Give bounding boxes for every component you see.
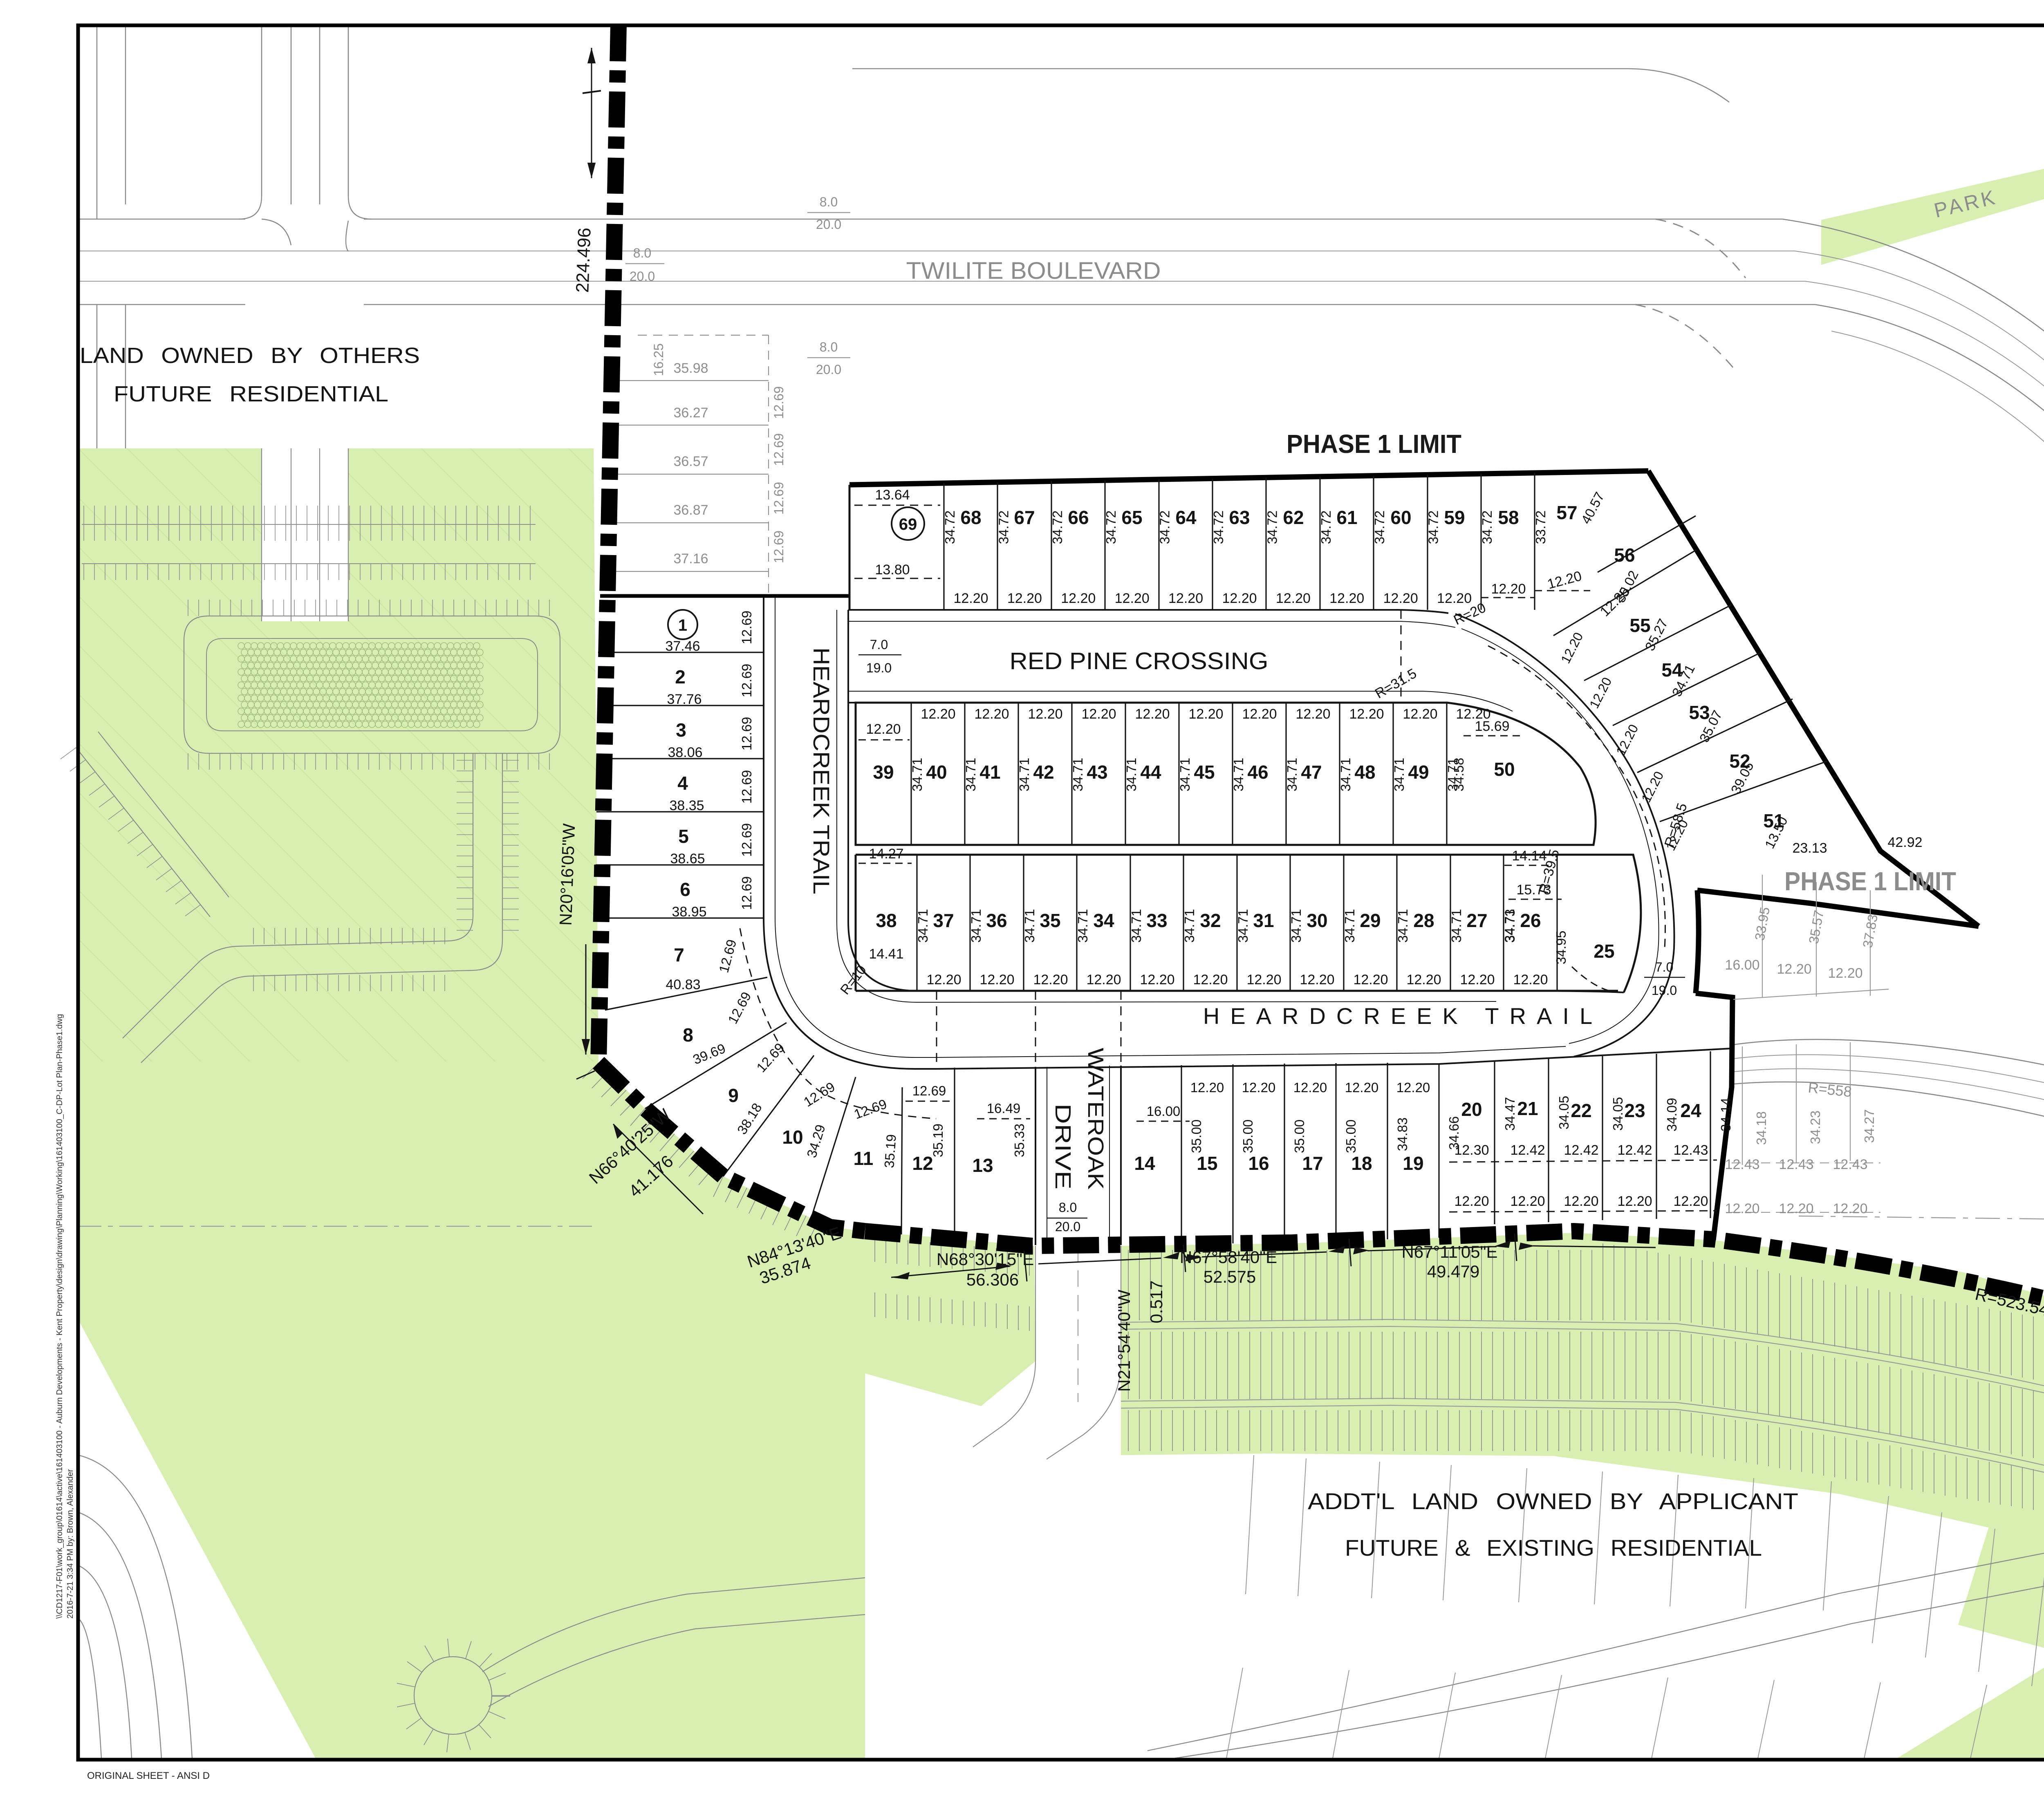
svg-text:34.72: 34.72 bbox=[1372, 511, 1387, 544]
svg-text:12.69: 12.69 bbox=[771, 433, 786, 466]
svg-text:20.0: 20.0 bbox=[816, 362, 841, 377]
svg-text:12.20: 12.20 bbox=[1406, 972, 1441, 988]
svg-text:38.06: 38.06 bbox=[668, 745, 702, 760]
svg-text:8.0: 8.0 bbox=[1059, 1200, 1077, 1215]
svg-text:42.92: 42.92 bbox=[1887, 835, 1922, 850]
svg-text:49: 49 bbox=[1408, 761, 1429, 783]
svg-text:34.71: 34.71 bbox=[1124, 758, 1139, 792]
svg-text:12.20: 12.20 bbox=[1033, 972, 1068, 988]
svg-text:62: 62 bbox=[1283, 507, 1304, 528]
svg-text:RED PINE CROSSING: RED PINE CROSSING bbox=[1010, 648, 1269, 674]
svg-text:34.47: 34.47 bbox=[1502, 1097, 1517, 1131]
svg-text:34.71: 34.71 bbox=[968, 909, 984, 943]
svg-text:46: 46 bbox=[1247, 761, 1268, 783]
svg-text:20.0: 20.0 bbox=[1055, 1219, 1080, 1234]
svg-text:12.42: 12.42 bbox=[1510, 1142, 1545, 1158]
svg-text:12.20: 12.20 bbox=[1353, 972, 1388, 988]
svg-text:12.42: 12.42 bbox=[1564, 1142, 1598, 1158]
svg-text:34.71: 34.71 bbox=[1017, 758, 1032, 792]
svg-text:12.20: 12.20 bbox=[1246, 972, 1281, 988]
svg-text:67: 67 bbox=[1014, 507, 1035, 528]
svg-text:34.71: 34.71 bbox=[1338, 758, 1353, 792]
svg-text:47: 47 bbox=[1301, 761, 1322, 783]
svg-text:17: 17 bbox=[1302, 1153, 1323, 1174]
svg-text:12.42: 12.42 bbox=[1617, 1142, 1652, 1158]
svg-text:34.71: 34.71 bbox=[1022, 909, 1037, 943]
svg-text:19.0: 19.0 bbox=[1652, 983, 1677, 998]
svg-text:60: 60 bbox=[1390, 507, 1411, 528]
svg-text:12.20: 12.20 bbox=[921, 706, 955, 722]
svg-text:12: 12 bbox=[912, 1153, 933, 1174]
svg-text:44: 44 bbox=[1140, 761, 1161, 783]
svg-text:12.20: 12.20 bbox=[1115, 591, 1150, 606]
svg-text:12.20: 12.20 bbox=[979, 972, 1014, 988]
svg-text:37.16: 37.16 bbox=[673, 551, 708, 567]
svg-text:12.20: 12.20 bbox=[1242, 706, 1277, 722]
svg-text:34.71: 34.71 bbox=[1235, 909, 1251, 943]
svg-text:12.20: 12.20 bbox=[1061, 591, 1096, 606]
svg-text:12.20: 12.20 bbox=[1828, 965, 1862, 981]
svg-text:40.83: 40.83 bbox=[666, 977, 700, 992]
svg-text:\\CD1217-F01\work_group\01614\: \\CD1217-F01\work_group\01614\active\161… bbox=[55, 1014, 64, 1619]
svg-text:33: 33 bbox=[1146, 910, 1167, 931]
svg-text:13: 13 bbox=[972, 1155, 993, 1176]
svg-text:35.00: 35.00 bbox=[1343, 1120, 1358, 1153]
svg-text:35.19: 35.19 bbox=[930, 1124, 946, 1158]
svg-text:N67°11'05"E: N67°11'05"E bbox=[1401, 1242, 1497, 1261]
svg-text:69: 69 bbox=[899, 515, 917, 533]
svg-text:7: 7 bbox=[674, 944, 684, 965]
svg-text:28: 28 bbox=[1413, 910, 1434, 931]
svg-text:25: 25 bbox=[1594, 941, 1614, 962]
svg-text:13.80: 13.80 bbox=[875, 562, 910, 578]
svg-text:12.69: 12.69 bbox=[739, 717, 754, 751]
svg-text:38.65: 38.65 bbox=[670, 851, 705, 867]
svg-text:12.69: 12.69 bbox=[739, 664, 754, 698]
svg-text:34.71: 34.71 bbox=[1289, 909, 1304, 943]
svg-text:12.20: 12.20 bbox=[1454, 1194, 1489, 1209]
svg-text:34.71: 34.71 bbox=[963, 758, 978, 792]
svg-text:12.20: 12.20 bbox=[1779, 1201, 1813, 1216]
svg-text:12.20: 12.20 bbox=[1222, 591, 1257, 606]
svg-text:N68°30'15"E: N68°30'15"E bbox=[937, 1250, 1034, 1269]
svg-text:34.83: 34.83 bbox=[1395, 1118, 1410, 1151]
svg-text:34.71: 34.71 bbox=[1342, 909, 1357, 943]
svg-text:48: 48 bbox=[1354, 761, 1375, 783]
svg-text:34.27: 34.27 bbox=[1862, 1109, 1877, 1143]
svg-text:12.43: 12.43 bbox=[1673, 1142, 1708, 1158]
svg-text:12.69: 12.69 bbox=[739, 876, 754, 910]
svg-text:59: 59 bbox=[1444, 507, 1465, 528]
svg-text:23.13: 23.13 bbox=[1792, 840, 1827, 856]
svg-text:12.20: 12.20 bbox=[1188, 706, 1223, 722]
svg-text:16.00: 16.00 bbox=[1725, 957, 1759, 973]
svg-text:34.71: 34.71 bbox=[1395, 909, 1410, 943]
svg-text:12.20: 12.20 bbox=[1460, 972, 1495, 988]
svg-text:PHASE 1 LIMIT: PHASE 1 LIMIT bbox=[1784, 867, 1956, 896]
svg-text:34.72: 34.72 bbox=[1479, 511, 1495, 544]
svg-text:12.20: 12.20 bbox=[1491, 581, 1526, 597]
svg-text:12.43: 12.43 bbox=[1833, 1157, 1867, 1172]
svg-text:35.33: 35.33 bbox=[1012, 1124, 1027, 1158]
svg-text:34.71: 34.71 bbox=[915, 909, 930, 943]
svg-text:12.69: 12.69 bbox=[739, 770, 754, 804]
svg-text:12.20: 12.20 bbox=[926, 972, 961, 988]
svg-text:14.14: 14.14 bbox=[1512, 848, 1546, 864]
svg-text:12.20: 12.20 bbox=[1329, 591, 1364, 606]
svg-text:20.0: 20.0 bbox=[816, 217, 841, 232]
svg-text:58: 58 bbox=[1498, 507, 1519, 528]
svg-text:34.71: 34.71 bbox=[1449, 909, 1464, 943]
svg-text:66: 66 bbox=[1068, 507, 1089, 528]
svg-text:16: 16 bbox=[1248, 1153, 1269, 1174]
svg-text:5: 5 bbox=[678, 826, 689, 847]
svg-text:FUTURE RESIDENTIAL: FUTURE RESIDENTIAL bbox=[114, 382, 388, 406]
svg-text:224.496: 224.496 bbox=[572, 227, 595, 293]
svg-text:3: 3 bbox=[676, 719, 686, 741]
svg-text:45: 45 bbox=[1194, 761, 1215, 783]
svg-text:40: 40 bbox=[926, 761, 947, 783]
svg-text:34.23: 34.23 bbox=[1808, 1111, 1823, 1144]
svg-text:55: 55 bbox=[1629, 615, 1650, 636]
svg-text:63: 63 bbox=[1229, 507, 1250, 528]
svg-text:34.14: 34.14 bbox=[1718, 1098, 1733, 1132]
svg-text:12.20: 12.20 bbox=[1300, 972, 1334, 988]
svg-text:2016-7-21 3:34 PM by: Brown, A: 2016-7-21 3:34 PM by: Brown, Alexander bbox=[66, 1469, 75, 1619]
svg-text:FUTURE & EXISTING RESIDENTIAL: FUTURE & EXISTING RESIDENTIAL bbox=[1345, 1535, 1762, 1561]
svg-text:15: 15 bbox=[1197, 1153, 1217, 1174]
svg-text:34.71: 34.71 bbox=[1392, 758, 1407, 792]
svg-text:12.20: 12.20 bbox=[953, 591, 988, 606]
svg-text:12.20: 12.20 bbox=[1028, 706, 1062, 722]
svg-text:12.20: 12.20 bbox=[1777, 961, 1811, 977]
svg-text:34.73: 34.73 bbox=[1502, 909, 1517, 943]
svg-text:34.72: 34.72 bbox=[1426, 511, 1441, 544]
svg-text:34.05: 34.05 bbox=[1610, 1097, 1625, 1131]
svg-text:35.19: 35.19 bbox=[881, 1134, 899, 1169]
svg-text:19.0: 19.0 bbox=[866, 661, 892, 675]
svg-text:32: 32 bbox=[1200, 910, 1221, 931]
svg-text:19: 19 bbox=[1403, 1153, 1423, 1174]
svg-text:9: 9 bbox=[728, 1085, 739, 1106]
svg-text:12.20: 12.20 bbox=[1617, 1194, 1652, 1209]
svg-text:36: 36 bbox=[986, 910, 1007, 931]
svg-text:27: 27 bbox=[1466, 910, 1487, 931]
svg-text:TWILITE BOULEVARD: TWILITE BOULEVARD bbox=[906, 258, 1161, 284]
svg-text:12.20: 12.20 bbox=[1293, 1080, 1327, 1095]
svg-text:43: 43 bbox=[1087, 761, 1107, 783]
svg-text:34.09: 34.09 bbox=[1664, 1098, 1679, 1132]
svg-text:12.20: 12.20 bbox=[866, 721, 901, 737]
svg-text:12.20: 12.20 bbox=[1403, 706, 1437, 722]
svg-text:2: 2 bbox=[675, 666, 686, 688]
svg-text:31: 31 bbox=[1253, 910, 1274, 931]
svg-text:38.95: 38.95 bbox=[672, 904, 706, 920]
svg-text:36.27: 36.27 bbox=[673, 405, 708, 421]
svg-text:29: 29 bbox=[1360, 910, 1381, 931]
svg-text:21: 21 bbox=[1517, 1098, 1538, 1119]
svg-text:34.72: 34.72 bbox=[1211, 511, 1226, 544]
svg-text:35: 35 bbox=[1040, 910, 1060, 931]
svg-text:34.71: 34.71 bbox=[1177, 758, 1192, 792]
svg-text:20: 20 bbox=[1461, 1099, 1482, 1120]
svg-text:34.05: 34.05 bbox=[1556, 1096, 1571, 1130]
svg-text:61: 61 bbox=[1336, 507, 1357, 528]
svg-text:N21°54'40"W: N21°54'40"W bbox=[1114, 1290, 1134, 1392]
svg-text:56: 56 bbox=[1614, 544, 1635, 566]
svg-text:34.71: 34.71 bbox=[1070, 758, 1085, 792]
svg-text:34: 34 bbox=[1093, 910, 1114, 931]
svg-text:33.72: 33.72 bbox=[1533, 511, 1548, 544]
svg-text:56.306: 56.306 bbox=[966, 1270, 1019, 1289]
svg-text:22: 22 bbox=[1571, 1100, 1591, 1121]
svg-text:37.46: 37.46 bbox=[665, 638, 700, 654]
svg-text:8.0: 8.0 bbox=[820, 195, 838, 209]
svg-text:10: 10 bbox=[782, 1127, 803, 1148]
svg-text:12.20: 12.20 bbox=[1295, 706, 1330, 722]
svg-text:14.41: 14.41 bbox=[869, 946, 903, 962]
svg-text:34.71: 34.71 bbox=[1129, 909, 1144, 943]
svg-text:12.20: 12.20 bbox=[1140, 972, 1174, 988]
svg-text:57: 57 bbox=[1556, 502, 1577, 523]
svg-text:34.72: 34.72 bbox=[1103, 511, 1118, 544]
svg-text:12.20: 12.20 bbox=[974, 706, 1009, 722]
svg-text:12.20: 12.20 bbox=[1081, 706, 1116, 722]
svg-text:7.0: 7.0 bbox=[870, 637, 888, 652]
svg-text:24: 24 bbox=[1680, 1100, 1701, 1121]
svg-text:34.18: 34.18 bbox=[1754, 1111, 1769, 1145]
svg-text:12.43: 12.43 bbox=[1725, 1157, 1759, 1172]
svg-text:12.20: 12.20 bbox=[1007, 591, 1042, 606]
svg-text:39: 39 bbox=[873, 761, 894, 783]
svg-text:35.98: 35.98 bbox=[673, 361, 708, 376]
svg-text:12.20: 12.20 bbox=[1190, 1080, 1224, 1095]
svg-text:1: 1 bbox=[678, 616, 687, 634]
svg-text:18: 18 bbox=[1351, 1153, 1372, 1174]
svg-text:34.72: 34.72 bbox=[1050, 511, 1065, 544]
svg-text:37.76: 37.76 bbox=[667, 692, 702, 707]
svg-text:36.87: 36.87 bbox=[673, 502, 708, 518]
svg-text:HEARDCREEK TRAIL: HEARDCREEK TRAIL bbox=[809, 647, 834, 894]
svg-text:34.71: 34.71 bbox=[910, 758, 925, 792]
svg-text:26: 26 bbox=[1520, 910, 1541, 931]
svg-text:36.57: 36.57 bbox=[673, 454, 708, 469]
svg-text:12.20: 12.20 bbox=[1564, 1194, 1598, 1209]
svg-text:12.20: 12.20 bbox=[1276, 591, 1311, 606]
svg-text:16.25: 16.25 bbox=[651, 343, 666, 376]
svg-text:12.20: 12.20 bbox=[1510, 1194, 1545, 1209]
svg-text:15.69: 15.69 bbox=[1475, 719, 1509, 734]
svg-text:12.20: 12.20 bbox=[1673, 1194, 1708, 1209]
svg-text:12.20: 12.20 bbox=[1135, 706, 1170, 722]
svg-text:12.20: 12.20 bbox=[1383, 591, 1418, 606]
svg-text:12.20: 12.20 bbox=[1725, 1201, 1759, 1216]
svg-text:34.71: 34.71 bbox=[1075, 909, 1090, 943]
svg-text:34.71: 34.71 bbox=[1231, 758, 1246, 792]
svg-text:42: 42 bbox=[1033, 761, 1054, 783]
svg-text:12.69: 12.69 bbox=[739, 611, 754, 645]
svg-text:65: 65 bbox=[1121, 507, 1142, 528]
svg-text:52.575: 52.575 bbox=[1204, 1267, 1256, 1286]
svg-text:12.20: 12.20 bbox=[1513, 972, 1548, 988]
svg-text:8.0: 8.0 bbox=[820, 340, 838, 354]
svg-text:34.72: 34.72 bbox=[942, 511, 957, 544]
svg-text:11: 11 bbox=[854, 1148, 874, 1169]
svg-text:16.49: 16.49 bbox=[987, 1101, 1021, 1116]
svg-text:PHASE 1 LIMIT: PHASE 1 LIMIT bbox=[1286, 429, 1461, 459]
svg-text:12.69: 12.69 bbox=[771, 531, 786, 563]
svg-text:12.20: 12.20 bbox=[1437, 591, 1472, 606]
svg-text:ORIGINAL SHEET - ANSI D: ORIGINAL SHEET - ANSI D bbox=[87, 1770, 210, 1781]
svg-text:37: 37 bbox=[933, 910, 954, 931]
svg-text:12.30: 12.30 bbox=[1454, 1142, 1489, 1158]
svg-text:N20°16'05"W: N20°16'05"W bbox=[556, 823, 579, 926]
svg-text:35.00: 35.00 bbox=[1240, 1120, 1255, 1153]
svg-text:12.69: 12.69 bbox=[771, 386, 786, 419]
svg-text:LAND OWNED BY OTHERS: LAND OWNED BY OTHERS bbox=[80, 343, 420, 368]
svg-text:N67°58'40"E: N67°58'40"E bbox=[1180, 1248, 1277, 1267]
svg-text:12.20: 12.20 bbox=[1086, 972, 1121, 988]
svg-text:7.0: 7.0 bbox=[1655, 960, 1673, 974]
svg-text:8: 8 bbox=[683, 1024, 693, 1046]
svg-text:14.27: 14.27 bbox=[869, 846, 903, 862]
svg-text:WATEROAK: WATEROAK bbox=[1083, 1048, 1108, 1190]
svg-text:DRIVE: DRIVE bbox=[1051, 1104, 1075, 1189]
svg-text:34.58: 34.58 bbox=[1451, 758, 1466, 792]
svg-text:34.72: 34.72 bbox=[996, 511, 1011, 544]
svg-text:34.71: 34.71 bbox=[1284, 758, 1300, 792]
svg-text:12.20: 12.20 bbox=[1396, 1080, 1430, 1095]
svg-text:8.0: 8.0 bbox=[633, 246, 651, 260]
svg-text:12.20: 12.20 bbox=[1833, 1201, 1867, 1216]
svg-text:12.43: 12.43 bbox=[1779, 1157, 1813, 1172]
svg-text:34.95: 34.95 bbox=[1553, 931, 1569, 965]
svg-text:35.00: 35.00 bbox=[1292, 1120, 1307, 1153]
svg-text:38.35: 38.35 bbox=[669, 798, 704, 813]
svg-text:34.71: 34.71 bbox=[1182, 909, 1197, 943]
svg-text:12.20: 12.20 bbox=[1168, 591, 1203, 606]
svg-text:14: 14 bbox=[1134, 1153, 1155, 1174]
svg-text:34.72: 34.72 bbox=[1157, 511, 1172, 544]
svg-text:23: 23 bbox=[1624, 1100, 1645, 1121]
svg-text:34.72: 34.72 bbox=[1264, 511, 1280, 544]
svg-text:12.20: 12.20 bbox=[1349, 706, 1384, 722]
svg-text:ADDT'L LAND OWNED BY APPLICANT: ADDT'L LAND OWNED BY APPLICANT bbox=[1308, 1488, 1798, 1514]
svg-text:12.69: 12.69 bbox=[912, 1083, 946, 1098]
svg-text:12.20: 12.20 bbox=[1193, 972, 1228, 988]
svg-text:16.00: 16.00 bbox=[1147, 1104, 1181, 1119]
svg-text:30: 30 bbox=[1307, 910, 1327, 931]
svg-text:0.517: 0.517 bbox=[1147, 1280, 1166, 1323]
svg-text:49.479: 49.479 bbox=[1427, 1262, 1479, 1281]
svg-text:20.0: 20.0 bbox=[630, 269, 655, 284]
svg-text:12.20: 12.20 bbox=[1345, 1080, 1379, 1095]
svg-text:4: 4 bbox=[677, 773, 688, 794]
svg-text:41: 41 bbox=[979, 761, 1000, 783]
svg-text:38: 38 bbox=[876, 910, 896, 931]
svg-text:HEARDCREEK TRAIL: HEARDCREEK TRAIL bbox=[1203, 1003, 1603, 1029]
svg-text:12.69: 12.69 bbox=[739, 823, 754, 857]
svg-text:68: 68 bbox=[960, 507, 981, 528]
svg-text:50: 50 bbox=[1494, 759, 1515, 780]
svg-text:12.20: 12.20 bbox=[1242, 1080, 1276, 1095]
svg-text:34.72: 34.72 bbox=[1318, 511, 1334, 544]
svg-text:64: 64 bbox=[1175, 507, 1197, 528]
svg-text:13.64: 13.64 bbox=[875, 487, 910, 503]
svg-text:6: 6 bbox=[680, 879, 690, 900]
svg-text:35.00: 35.00 bbox=[1189, 1120, 1204, 1153]
svg-text:12.69: 12.69 bbox=[771, 482, 786, 515]
